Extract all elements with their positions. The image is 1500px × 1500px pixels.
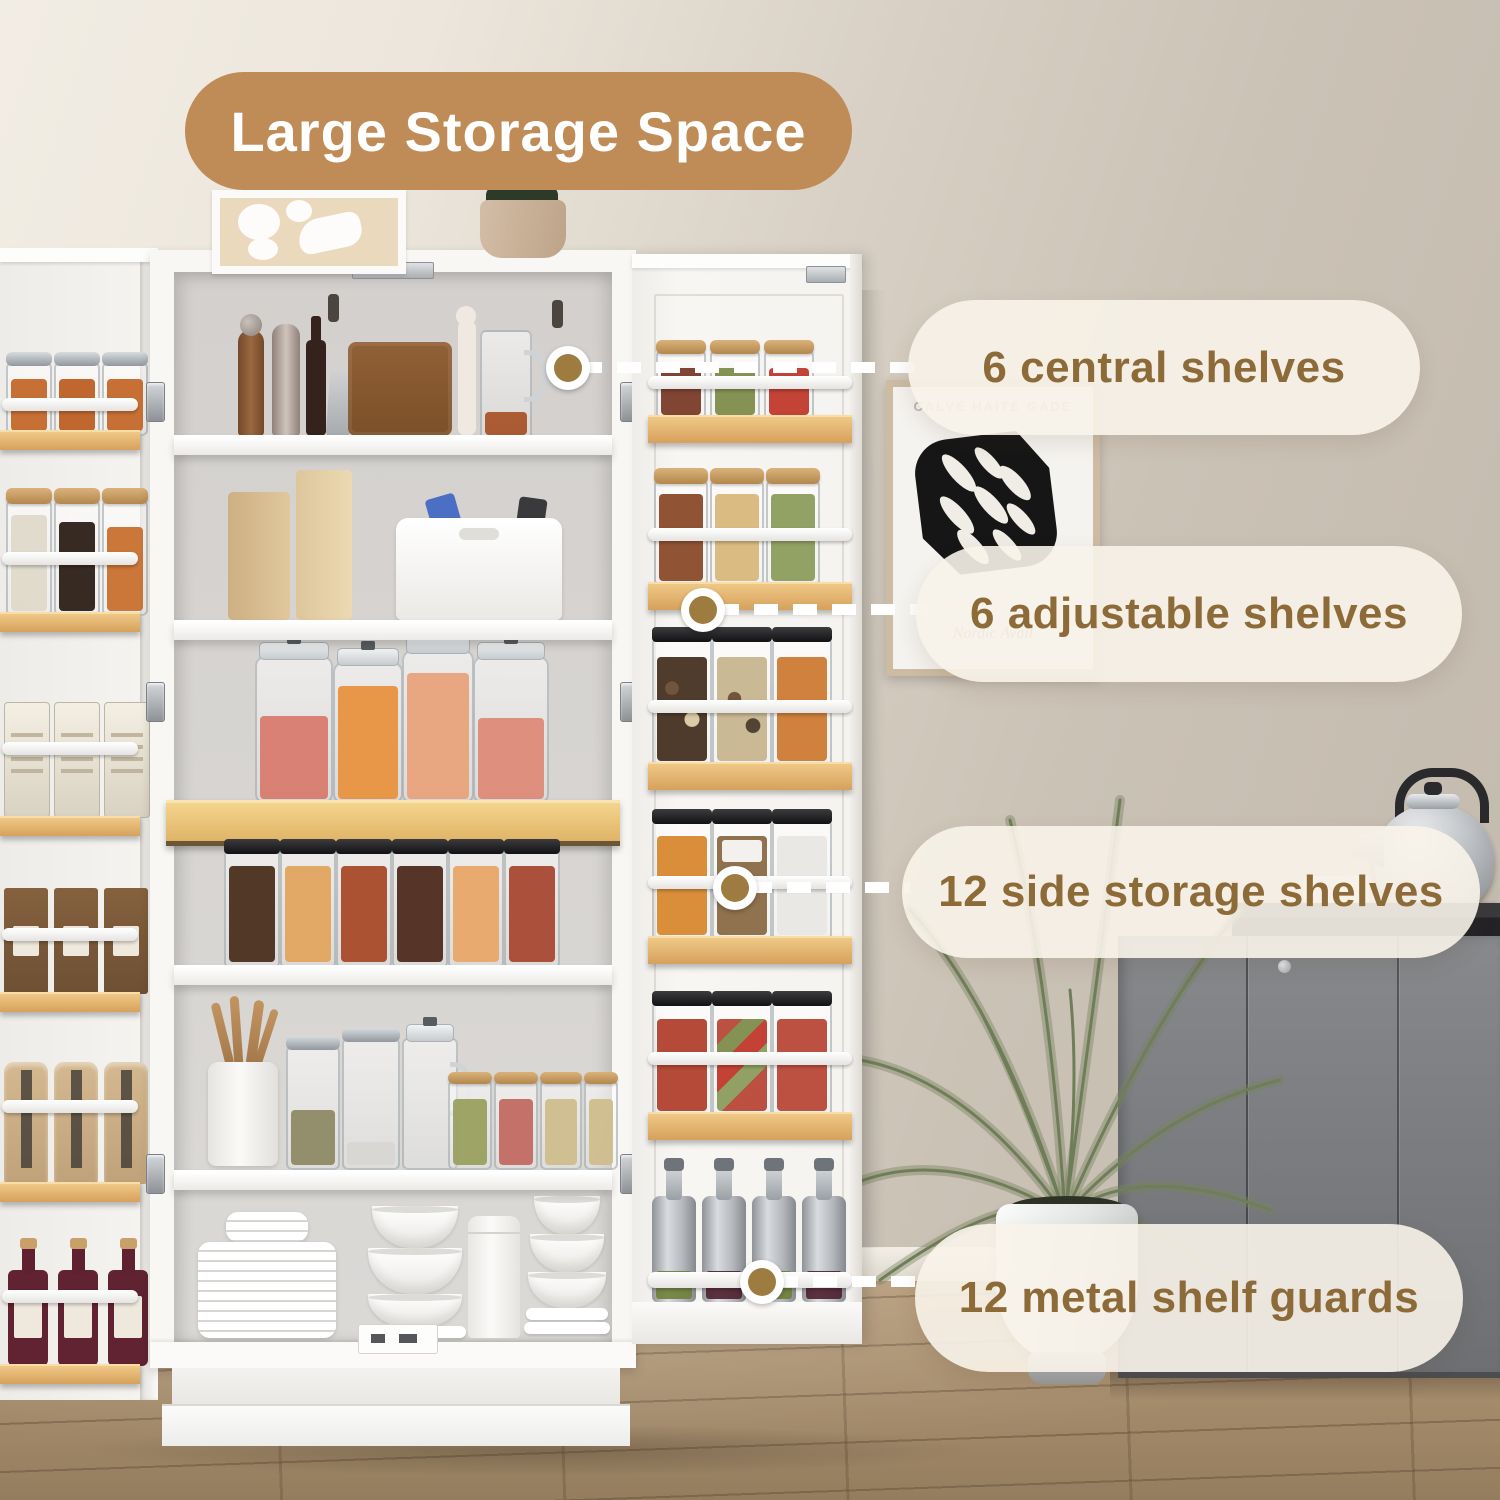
- utensil-crock: [208, 1062, 278, 1166]
- side-shelf: [0, 612, 140, 632]
- callout-text: 6 adjustable shelves: [970, 589, 1408, 639]
- connector-line: [774, 1276, 924, 1287]
- callout-adjustable-shelves: 6 adjustable shelves: [916, 546, 1462, 682]
- dry-food-canister: [392, 850, 448, 967]
- side-shelf: [0, 816, 140, 836]
- dry-food-canister: [504, 850, 560, 967]
- dry-food-canister: [224, 850, 280, 967]
- pantry-right-door: [632, 254, 862, 1344]
- figurine: [458, 320, 476, 436]
- callout-text: 6 central shelves: [982, 343, 1345, 393]
- kettle-lid: [1406, 794, 1460, 809]
- shelf-pin: [552, 300, 563, 328]
- dark-bottle: [306, 340, 326, 436]
- dry-food-canister: [336, 850, 392, 967]
- shelf-pin: [328, 294, 339, 322]
- pasta-jar: [402, 650, 474, 804]
- shelf-guard: [2, 1290, 138, 1303]
- food-box: [54, 888, 98, 994]
- pantry-plinth-base: [162, 1404, 630, 1446]
- kraft-sack: [4, 1062, 48, 1184]
- spice-jar: [448, 1080, 492, 1170]
- connector-line: [715, 604, 927, 615]
- callout-metal-shelf-guards: 12 metal shelf guards: [915, 1224, 1463, 1372]
- pasta-jar: [333, 662, 403, 804]
- plate-stack: [198, 1242, 336, 1338]
- white-storage-bin: [396, 518, 562, 620]
- pantry-plinth: [172, 1368, 620, 1406]
- shelf-guard: [648, 528, 852, 541]
- door-bottom-edge: [632, 1302, 862, 1344]
- side-shelf: [648, 415, 852, 443]
- wood-serving-board: [296, 470, 352, 620]
- pasta-jar: [255, 656, 333, 804]
- spice-jar: [540, 1080, 582, 1170]
- anchor-dot: [713, 866, 757, 910]
- side-shelf: [0, 1182, 140, 1202]
- shelf-guard: [648, 1052, 852, 1065]
- hinge: [146, 682, 165, 722]
- callout-side-storage-shelves: 12 side storage shelves: [902, 826, 1480, 958]
- canister: [54, 702, 100, 818]
- shelf-guard: [648, 376, 852, 389]
- outlet-box: [358, 1324, 438, 1354]
- plate: [524, 1322, 610, 1334]
- wood-serving-board: [228, 492, 290, 620]
- product-infographic: CALVE HAITE GADE Nordic Avail: [0, 0, 1500, 1500]
- canister: [104, 702, 150, 818]
- food-box: [104, 888, 148, 994]
- callout-text: 12 metal shelf guards: [959, 1273, 1419, 1323]
- white-canister: [468, 1216, 520, 1338]
- top-art-print: [212, 190, 406, 274]
- dry-food-canister: [448, 850, 504, 967]
- shelf-guard: [2, 928, 138, 941]
- shelf-guard: [648, 700, 852, 713]
- mason-jar: [342, 1038, 400, 1170]
- shelf-guard: [2, 398, 138, 411]
- food-box: [4, 888, 48, 994]
- shelf-guard: [2, 742, 138, 755]
- side-shelf: [648, 936, 852, 964]
- kraft-sack: [54, 1062, 98, 1184]
- anchor-dot: [681, 588, 725, 632]
- door-latch-hardware: [806, 266, 846, 283]
- title-banner: Large Storage Space: [185, 72, 852, 190]
- plate: [526, 1308, 608, 1320]
- door-top-edge: [0, 248, 158, 262]
- mason-jar: [286, 1046, 340, 1170]
- anchor-dot: [740, 1260, 784, 1304]
- cutting-board: [348, 342, 452, 436]
- spice-jar: [494, 1080, 538, 1170]
- pantry-left-door: [0, 248, 158, 1400]
- top-plant-pot: [480, 200, 566, 258]
- side-shelf: [0, 1364, 140, 1384]
- central-shelf: [174, 1170, 612, 1190]
- spice-jar: [584, 1080, 618, 1170]
- connector-line: [578, 362, 922, 373]
- hinge: [146, 382, 165, 422]
- central-shelf: [174, 435, 612, 455]
- pasta-jar: [473, 656, 549, 804]
- side-shelf: [648, 762, 852, 790]
- pepper-grinder-bulb: [240, 314, 262, 336]
- dry-food-canister: [280, 850, 336, 967]
- central-shelf: [174, 965, 612, 985]
- kraft-sack: [104, 1062, 148, 1184]
- side-shelf: [0, 430, 140, 450]
- callout-central-shelves: 6 central shelves: [908, 300, 1420, 435]
- side-shelf: [648, 1112, 852, 1140]
- pepper-grinder: [238, 330, 264, 436]
- title-text: Large Storage Space: [230, 99, 806, 164]
- pantry-main-cabinet: [150, 250, 636, 1368]
- anchor-dot: [546, 346, 590, 390]
- hinge: [146, 1154, 165, 1194]
- shelf-guard: [2, 552, 138, 565]
- plate-stack: [226, 1212, 308, 1242]
- salt-grinder: [272, 324, 300, 436]
- canister: [4, 702, 50, 818]
- callout-text: 12 side storage shelves: [938, 867, 1444, 917]
- central-shelf: [174, 620, 612, 640]
- kettle-knob: [1424, 782, 1442, 795]
- connector-line: [748, 882, 910, 893]
- side-shelf: [0, 992, 140, 1012]
- shelf-guard: [2, 1100, 138, 1113]
